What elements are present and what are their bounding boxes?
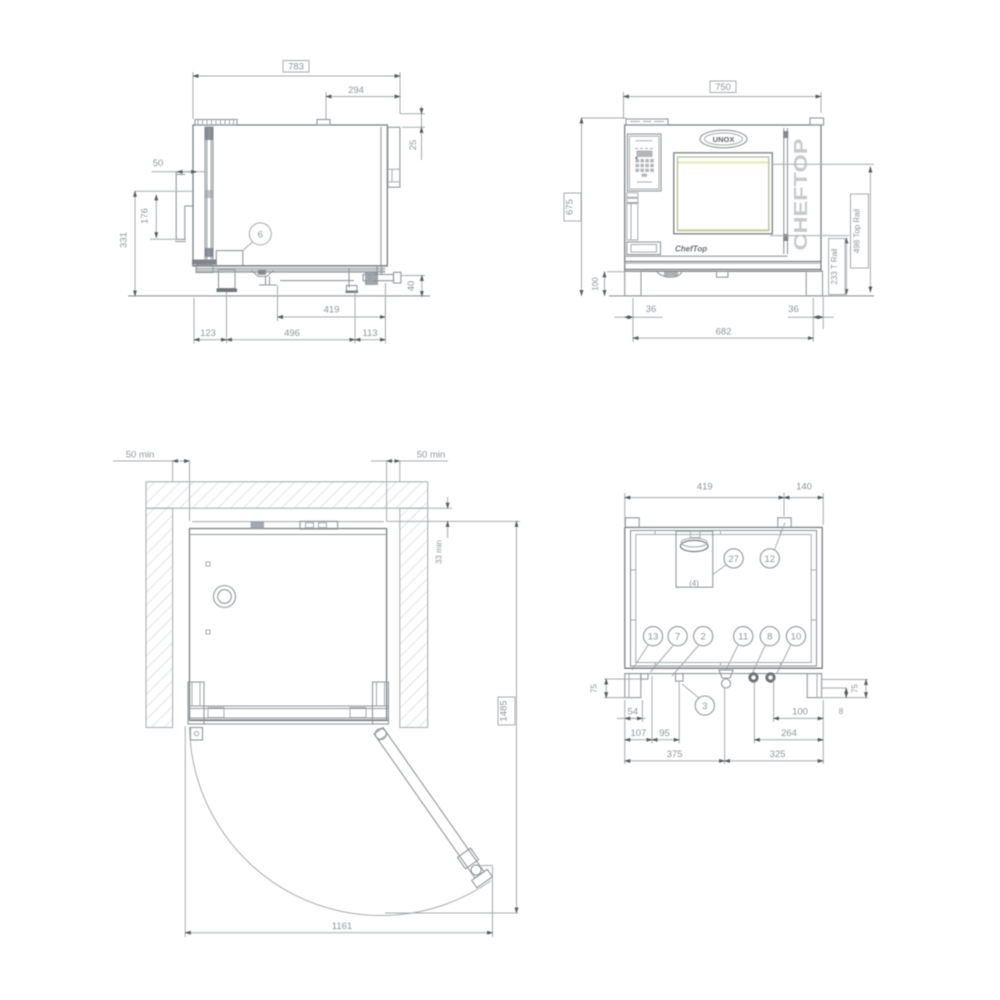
svg-text:1485: 1485 — [499, 700, 510, 721]
svg-text:50: 50 — [153, 158, 164, 169]
svg-text:294: 294 — [348, 85, 364, 96]
svg-text:750: 750 — [715, 82, 731, 93]
svg-text:8: 8 — [767, 632, 772, 643]
svg-text:100: 100 — [792, 707, 808, 718]
svg-text:419: 419 — [324, 305, 340, 316]
svg-text:40: 40 — [406, 281, 417, 292]
svg-text:3: 3 — [702, 701, 707, 712]
svg-text:95: 95 — [659, 728, 670, 739]
svg-text:50 min: 50 min — [126, 450, 155, 461]
svg-text:11: 11 — [738, 632, 748, 643]
svg-text:12: 12 — [765, 554, 776, 565]
svg-text:27: 27 — [728, 554, 739, 565]
svg-text:1161: 1161 — [332, 921, 352, 932]
svg-text:496: 496 — [284, 328, 300, 339]
svg-text:264: 264 — [781, 728, 797, 739]
svg-text:325: 325 — [770, 749, 786, 760]
svg-text:8: 8 — [839, 707, 844, 716]
svg-text:140: 140 — [796, 482, 812, 493]
svg-text:36: 36 — [788, 304, 799, 315]
svg-text:176: 176 — [140, 208, 151, 224]
svg-text:75: 75 — [590, 684, 599, 693]
svg-text:13: 13 — [648, 632, 659, 643]
svg-text:498 Top Rail: 498 Top Rail — [853, 209, 862, 254]
svg-text:CHEFTOP: CHEFTOP — [791, 139, 811, 251]
svg-text:75: 75 — [851, 684, 860, 693]
svg-text:54: 54 — [628, 707, 639, 718]
svg-text:682: 682 — [716, 327, 732, 338]
svg-text:33 min: 33 min — [435, 540, 444, 564]
svg-text:7: 7 — [675, 632, 680, 643]
svg-text:331: 331 — [119, 232, 130, 248]
svg-text:375: 375 — [667, 749, 683, 760]
svg-text:123: 123 — [200, 328, 216, 339]
svg-text:675: 675 — [565, 199, 576, 215]
svg-text:ChefTop: ChefTop — [675, 245, 707, 254]
svg-text:783: 783 — [288, 62, 304, 73]
svg-text:36: 36 — [646, 304, 657, 315]
svg-text:419: 419 — [697, 482, 713, 493]
svg-text:50 min: 50 min — [417, 450, 446, 461]
svg-text:UNOX: UNOX — [713, 135, 735, 144]
svg-text:2: 2 — [701, 632, 706, 643]
svg-text:6: 6 — [258, 230, 263, 241]
svg-text:113: 113 — [362, 328, 377, 339]
svg-text:107: 107 — [630, 728, 646, 739]
svg-text:10: 10 — [791, 632, 802, 643]
svg-text:25: 25 — [408, 140, 419, 151]
svg-text:(4): (4) — [689, 579, 699, 588]
svg-text:100: 100 — [591, 277, 600, 291]
svg-text:233 T Rail: 233 T Rail — [830, 248, 839, 284]
